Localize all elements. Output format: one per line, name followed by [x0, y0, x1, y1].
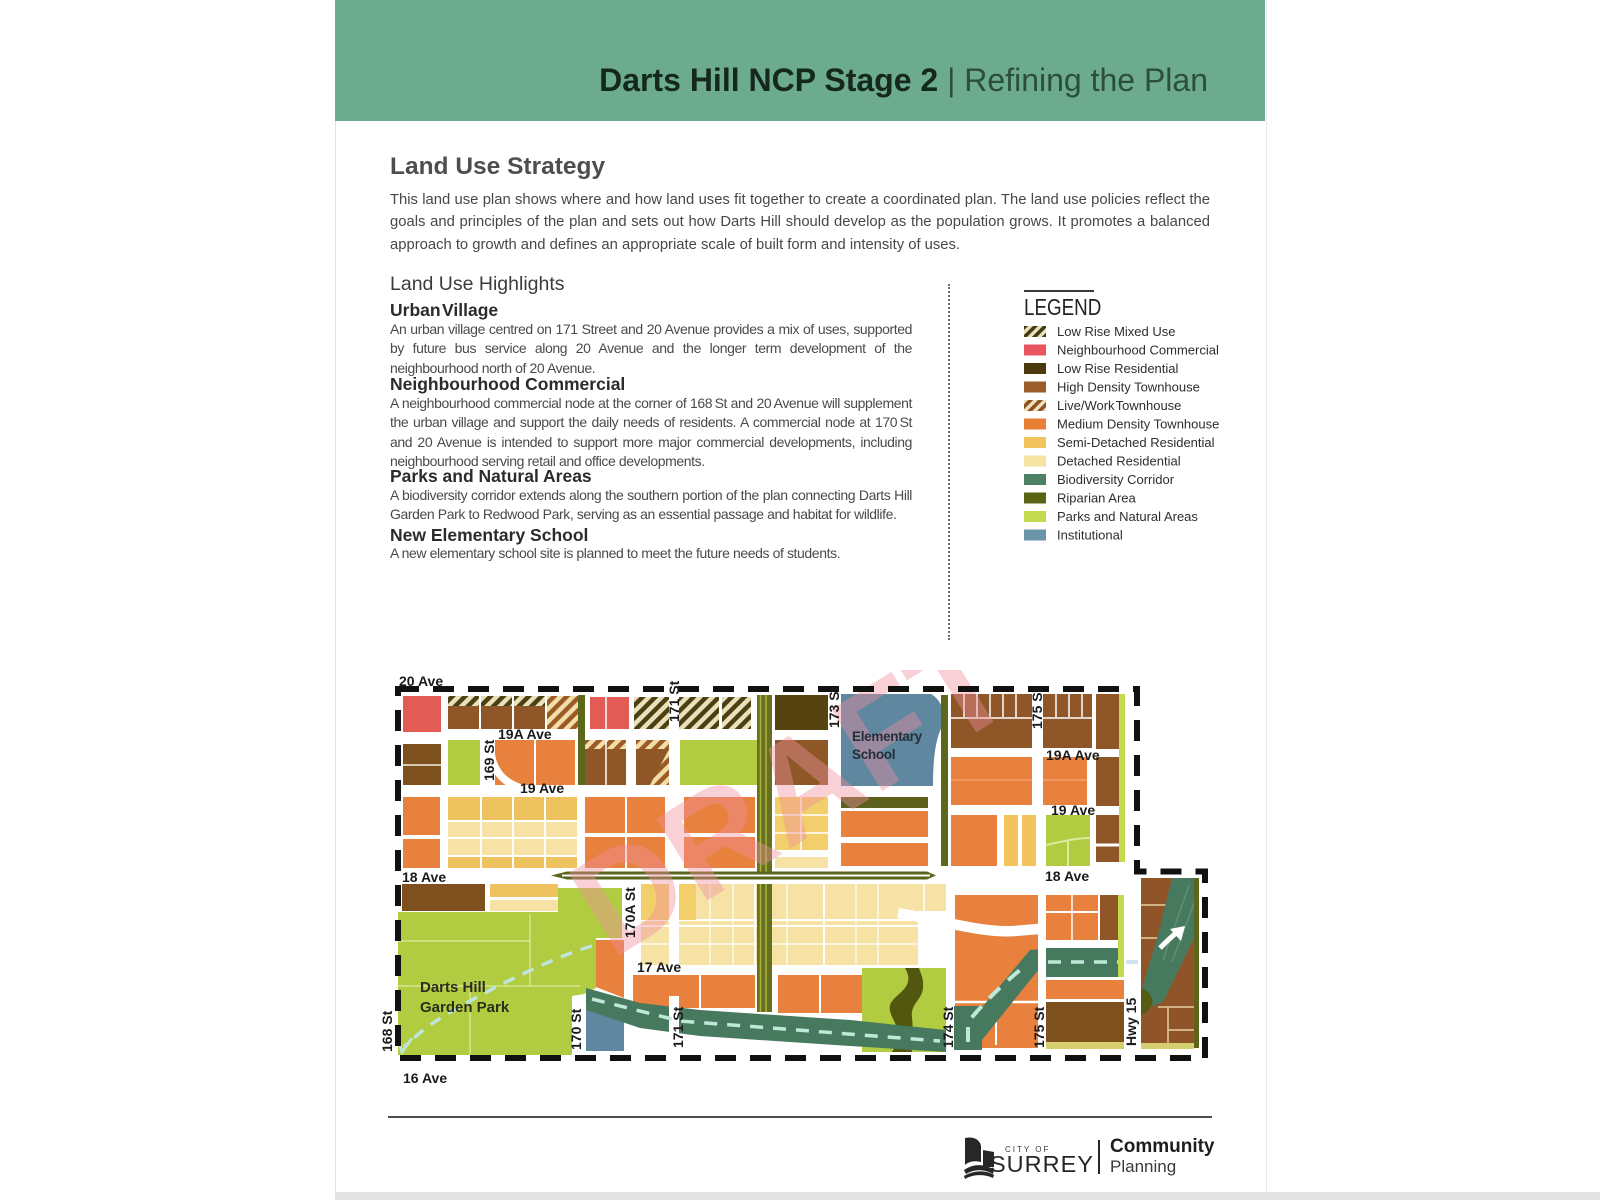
svg-text:17 Ave: 17 Ave	[637, 959, 681, 975]
svg-text:168 St: 168 St	[379, 1010, 395, 1052]
svg-text:175 St: 175 St	[1031, 1006, 1047, 1048]
svg-text:169 St: 169 St	[481, 739, 497, 781]
svg-text:Riparian Area: Riparian Area	[1057, 491, 1137, 506]
svg-text:Darts Hill: Darts Hill	[420, 979, 486, 996]
svg-text:Elementary: Elementary	[852, 729, 923, 744]
svg-text:Institutional: Institutional	[1057, 528, 1123, 543]
svg-text:Live/Work Townhouse: Live/Work Townhouse	[1057, 398, 1181, 413]
svg-text:19A Ave: 19A Ave	[498, 726, 552, 742]
svg-text:Biodiversity Corridor: Biodiversity Corridor	[1057, 472, 1175, 487]
svg-text:171 St: 171 St	[666, 680, 682, 722]
svg-text:16 Ave: 16 Ave	[403, 1070, 447, 1086]
svg-text:20 Ave: 20 Ave	[399, 673, 443, 689]
svg-text:Semi-Detached Residential: Semi-Detached Residential	[1057, 435, 1215, 450]
svg-text:Neighbourhood Commercial: Neighbourhood Commercial	[1057, 343, 1219, 358]
svg-text:Community: Community	[1110, 1136, 1215, 1157]
svg-text:SURREY: SURREY	[990, 1151, 1094, 1177]
svg-text:19 Ave: 19 Ave	[520, 780, 564, 796]
svg-text:Medium Density Townhouse: Medium Density Townhouse	[1057, 417, 1219, 432]
svg-text:175 St: 175 St	[1029, 687, 1045, 729]
svg-text:18 Ave: 18 Ave	[402, 869, 446, 885]
svg-text:School: School	[852, 747, 895, 762]
svg-text:Detached Residential: Detached Residential	[1057, 454, 1181, 469]
svg-text:High Density Townhouse: High Density Townhouse	[1057, 380, 1200, 395]
svg-text:Low Rise Mixed Use: Low Rise Mixed Use	[1057, 325, 1176, 339]
svg-text:170 St: 170 St	[568, 1008, 584, 1050]
svg-text:170A St: 170A St	[622, 887, 638, 938]
svg-text:Hwy 15: Hwy 15	[1123, 998, 1139, 1046]
svg-text:19 Ave: 19 Ave	[1051, 802, 1095, 818]
svg-text:171 St: 171 St	[670, 1006, 686, 1048]
svg-text:173 St: 173 St	[826, 686, 842, 728]
svg-text:174 St: 174 St	[940, 1006, 956, 1048]
svg-text:18 Ave: 18 Ave	[1045, 868, 1089, 884]
svg-text:Low Rise Residential: Low Rise Residential	[1057, 361, 1179, 376]
svg-text:19A Ave: 19A Ave	[1046, 747, 1100, 763]
svg-text:Parks and Natural Areas: Parks and Natural Areas	[1057, 509, 1198, 524]
svg-text:Garden Park: Garden Park	[420, 999, 510, 1016]
svg-text:Planning: Planning	[1110, 1157, 1176, 1176]
